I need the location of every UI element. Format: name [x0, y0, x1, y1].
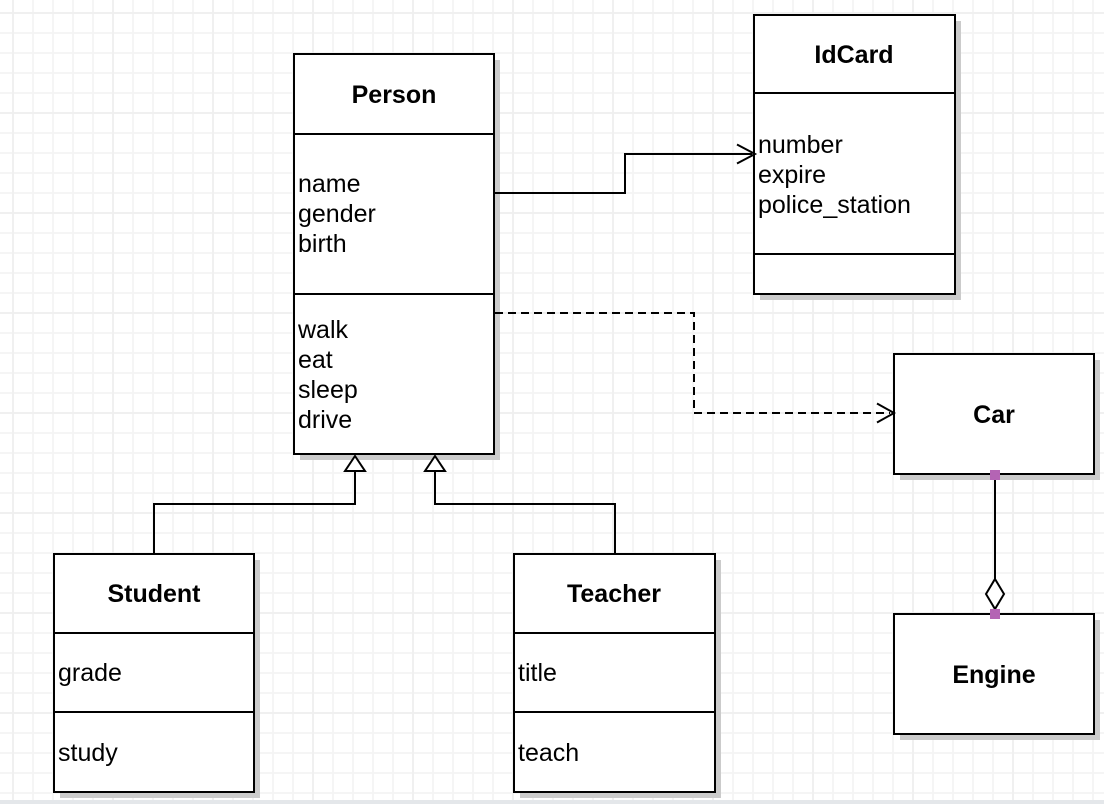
svg-text:eat: eat [298, 346, 333, 374]
svg-text:Student: Student [107, 580, 201, 608]
svg-text:Car: Car [973, 401, 1015, 429]
svg-text:walk: walk [297, 316, 349, 344]
svg-text:study: study [58, 739, 118, 767]
svg-text:IdCard: IdCard [814, 41, 893, 69]
svg-text:name: name [298, 170, 361, 198]
svg-text:grade: grade [58, 659, 122, 687]
svg-text:expire: expire [758, 161, 826, 189]
svg-text:teach: teach [518, 739, 579, 767]
svg-text:Teacher: Teacher [567, 580, 661, 608]
svg-text:title: title [518, 659, 557, 687]
svg-text:number: number [758, 131, 843, 159]
svg-text:police_station: police_station [758, 191, 911, 219]
svg-text:gender: gender [298, 200, 376, 228]
svg-text:Engine: Engine [952, 661, 1035, 689]
svg-text:Person: Person [352, 81, 437, 109]
svg-text:birth: birth [298, 230, 347, 258]
svg-text:drive: drive [298, 406, 352, 434]
svg-text:sleep: sleep [298, 376, 358, 404]
